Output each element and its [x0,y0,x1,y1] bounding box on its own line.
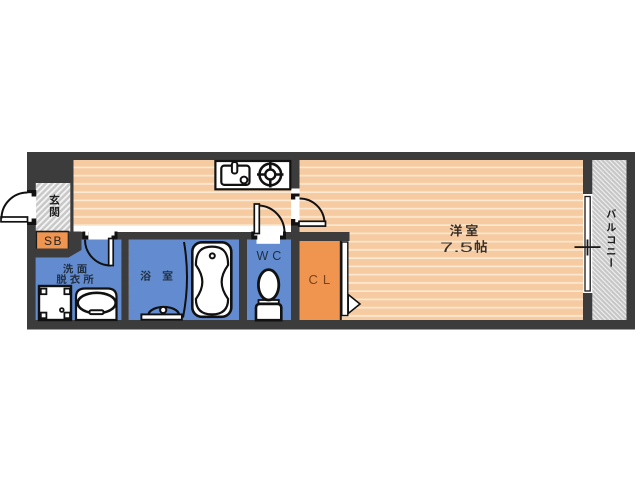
svg-text:7.5: 7.5 [440,240,473,255]
svg-text:SB: SB [44,234,63,248]
svg-text:WC: WC [257,249,286,263]
svg-text:CL: CL [309,272,336,287]
